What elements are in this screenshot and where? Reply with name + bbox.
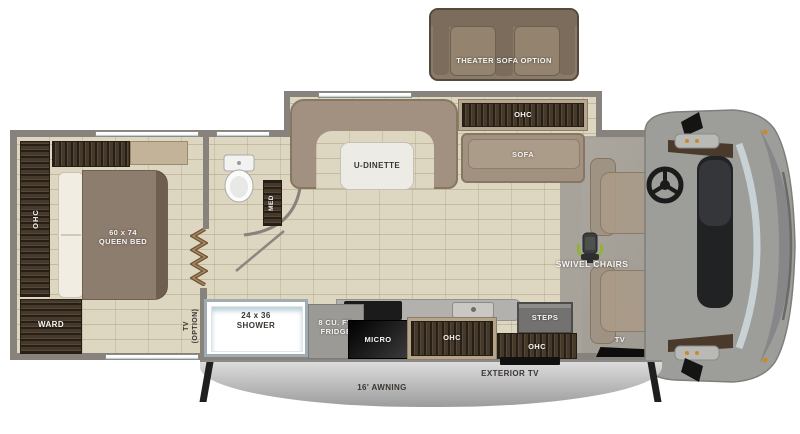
theater-sofa-cushion-right [514,26,560,76]
exterior-tv [500,357,560,365]
toilet-icon [220,153,258,205]
slideout-window [318,92,412,98]
cab-nose-graphic [641,98,799,394]
microwave-label: MICRO [348,333,408,345]
theater-sofa-armrest-left [433,23,449,75]
entry-ohc-label: OHC [497,340,577,352]
rv-floorplan: THEATER SOFA OPTION OHC WARD 60 x 74 QUE… [0,0,800,434]
med-label: MED [265,180,279,226]
awning-label: 16' AWNING [322,383,442,393]
bed-label: 60 x 74 QUEEN BED [80,228,166,246]
bedroom-headboard-cabinet [52,141,130,167]
cab-tv-label: TV [600,334,640,345]
wall-left [10,130,17,360]
theater-sofa-cushion-left [450,26,496,76]
lounge-ohc-label: OHC [458,108,588,120]
bedroom-dresser [130,141,188,165]
faucet-icon [471,307,476,312]
theater-sofa-console [495,12,513,76]
kitchen-sink [452,302,494,318]
exterior-tv-label: EXTERIOR TV [450,369,570,379]
steps-highlight [519,304,571,308]
theater-sofa-label: THEATER SOFA OPTION [431,56,577,65]
u-dinette-label: U-DINETTE [354,161,400,171]
wardrobe-label: WARD [20,318,82,332]
dinette-table: U-DINETTE [340,142,414,190]
pillow-divider [61,234,81,236]
theater-sofa-armrest-right [559,23,575,75]
theater-sofa-option: THEATER SOFA OPTION [429,8,579,81]
kitchen-ohc-label: OHC [407,331,497,343]
shower-label: 24 x 36 SHOWER [206,311,306,331]
bedroom-window-top-1 [95,131,199,137]
steps-label: STEPS [517,311,573,323]
swivel-chairs-label: SWIVEL CHAIRS [533,258,651,271]
bedroom-ohc-label: OHC [25,159,45,279]
steering-wheel-icon [644,164,686,206]
sofa-label: SOFA [461,148,585,160]
